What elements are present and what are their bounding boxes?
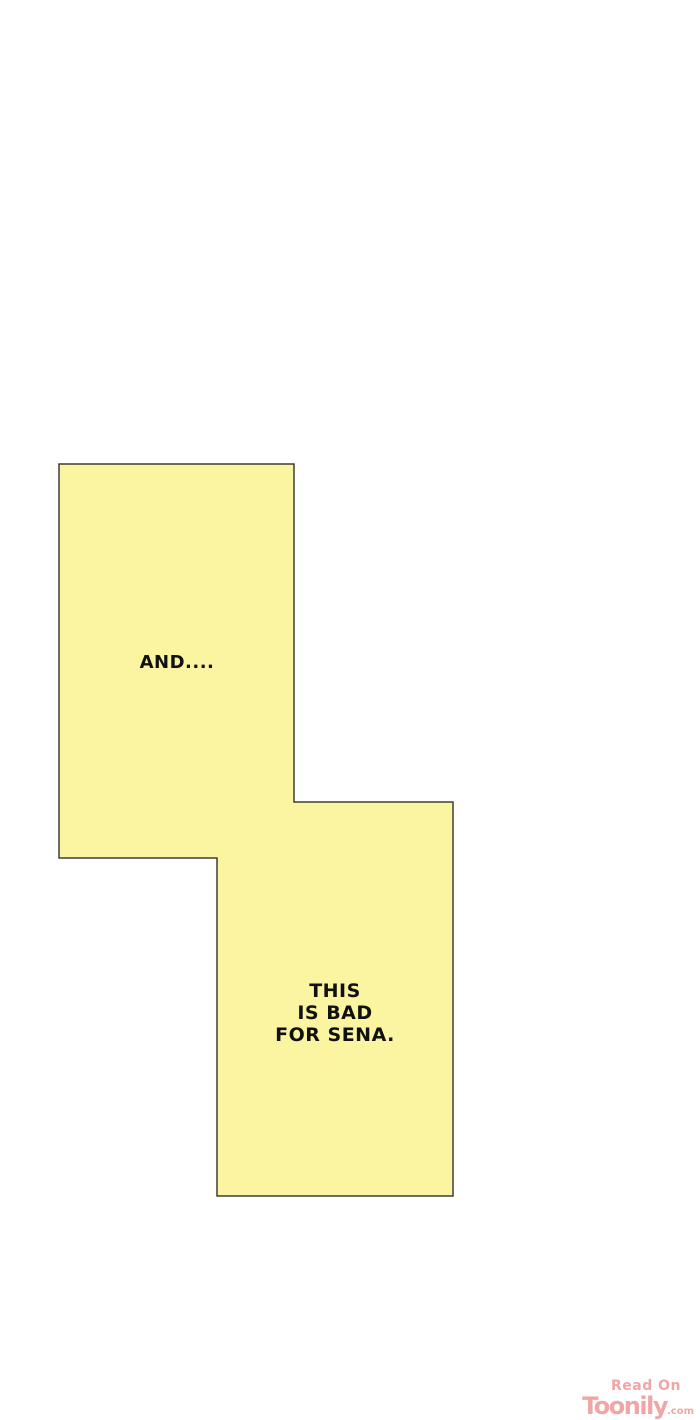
watermark-read-on: Read On	[582, 1379, 681, 1393]
watermark-suffix: .com	[667, 1406, 694, 1417]
caption-line-1: THIS	[309, 980, 361, 1002]
caption-panel	[0, 0, 700, 1420]
caption-line-2: IS BAD	[297, 1002, 372, 1024]
watermark-brand: Toonily	[582, 1392, 667, 1420]
caption-bubble-shape	[59, 464, 453, 1196]
caption-line-3: FOR SENA.	[275, 1024, 395, 1046]
watermark-brand-line: Toonily.com	[582, 1394, 694, 1418]
caption-text-bad: THIS IS BAD FOR SENA.	[217, 980, 453, 1046]
caption-text-and: AND....	[59, 652, 295, 673]
webtoon-page: AND.... THIS IS BAD FOR SENA. Read On To…	[0, 0, 700, 1420]
watermark: Read On Toonily.com	[582, 1379, 694, 1418]
